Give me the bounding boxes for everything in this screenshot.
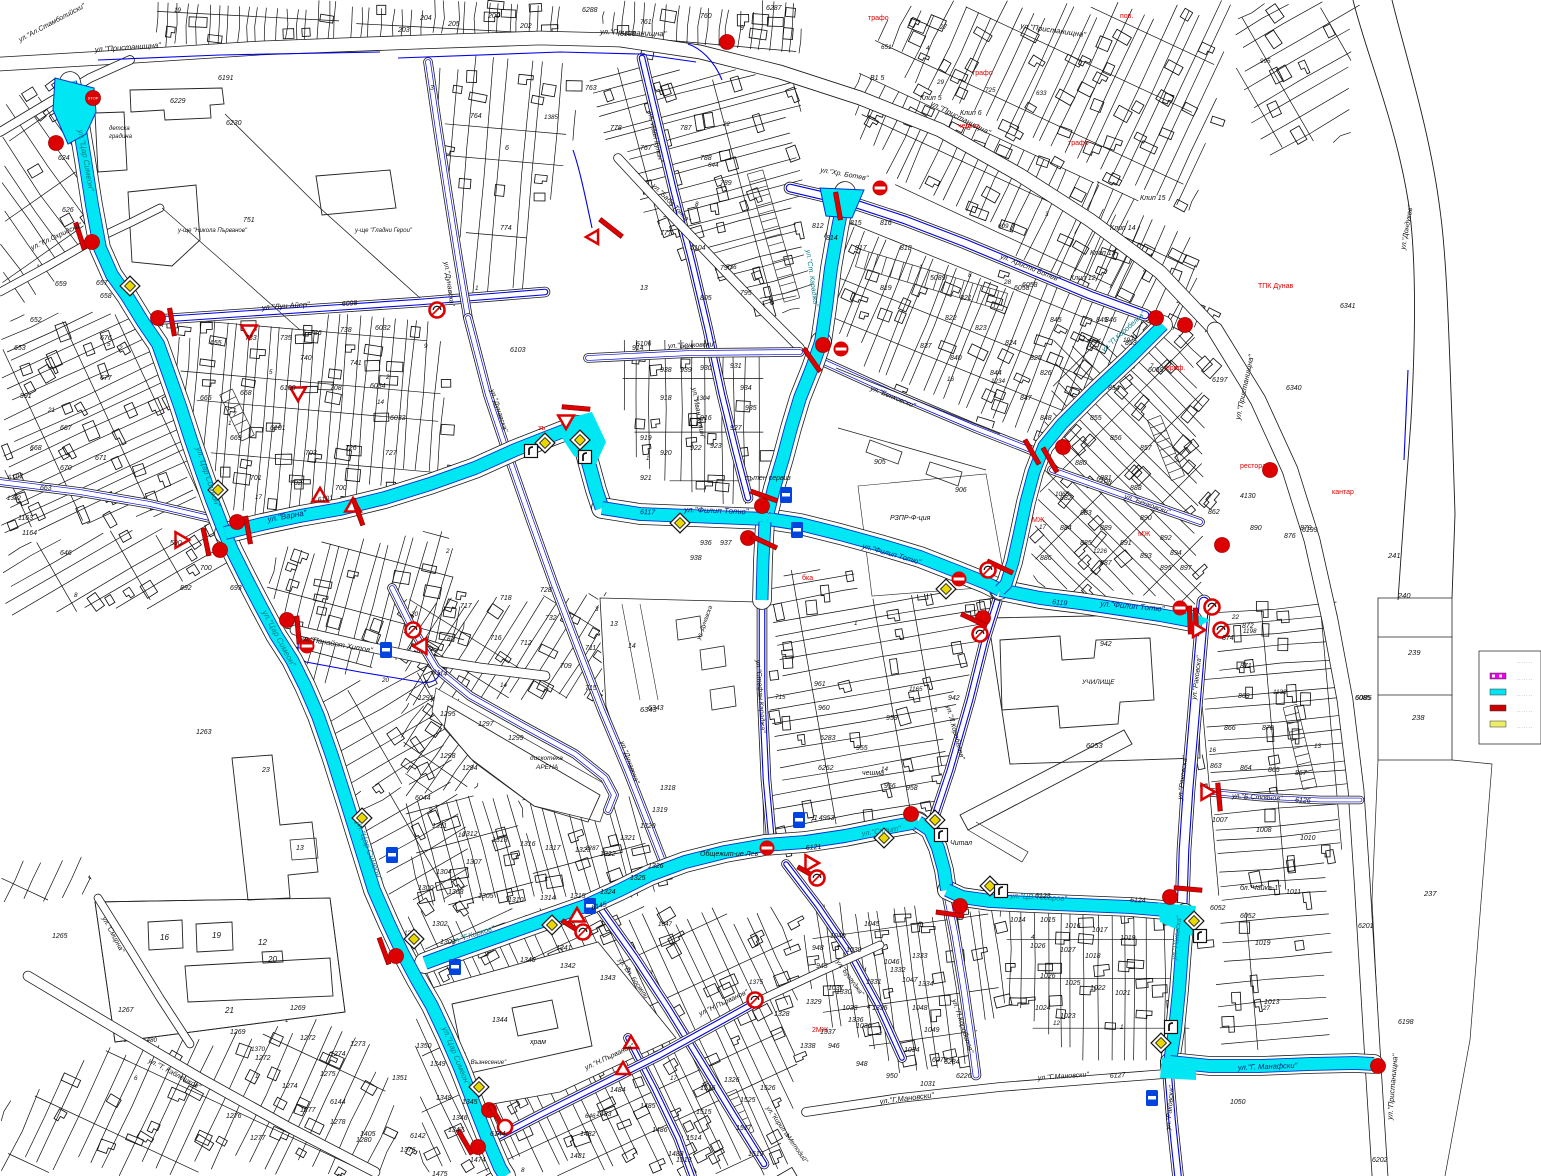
svg-text:1385: 1385 — [544, 114, 559, 121]
svg-text:трафо: трафо — [868, 15, 889, 22]
svg-text:4: 4 — [867, 1004, 871, 1011]
svg-text:.......: ....... — [1516, 694, 1533, 698]
svg-text:921: 921 — [640, 475, 652, 482]
svg-text:854: 854 — [1108, 385, 1120, 392]
svg-text:891: 891 — [1120, 540, 1132, 547]
svg-text:20: 20 — [267, 955, 277, 964]
svg-text:824: 824 — [1005, 340, 1017, 347]
svg-text:715: 715 — [585, 685, 597, 692]
svg-text:5089: 5089 — [930, 275, 946, 282]
svg-text:1163: 1163 — [18, 515, 33, 522]
svg-text:658: 658 — [100, 293, 112, 300]
svg-text:28: 28 — [1003, 279, 1012, 286]
svg-text:1475: 1475 — [432, 1171, 448, 1176]
svg-text:777: 777 — [660, 230, 673, 237]
svg-text:6059: 6059 — [1148, 367, 1164, 374]
svg-text:670: 670 — [60, 465, 72, 472]
svg-text:8: 8 — [918, 921, 922, 928]
svg-text:6142: 6142 — [410, 1133, 426, 1140]
svg-text:8: 8 — [74, 592, 78, 599]
svg-text:814: 814 — [826, 235, 838, 242]
svg-text:609: 609 — [998, 223, 1009, 230]
svg-text:676: 676 — [100, 335, 112, 342]
svg-text:938: 938 — [660, 367, 672, 374]
svg-text:787: 787 — [680, 125, 693, 132]
svg-text:991: 991 — [20, 393, 32, 400]
svg-text:883: 883 — [1080, 510, 1092, 517]
svg-text:703: 703 — [305, 450, 317, 457]
svg-text:пътен сервиз: пътен сервиз — [745, 475, 792, 482]
svg-text:816: 816 — [880, 220, 892, 227]
svg-text:1269: 1269 — [230, 1029, 246, 1036]
svg-text:733: 733 — [245, 335, 257, 342]
svg-text:21: 21 — [47, 407, 55, 414]
svg-text:1: 1 — [255, 1073, 259, 1080]
svg-text:1019: 1019 — [1120, 935, 1136, 942]
svg-text:937: 937 — [720, 540, 733, 547]
svg-text:6117: 6117 — [640, 509, 656, 517]
svg-text:890: 890 — [1250, 525, 1262, 532]
svg-text:1273: 1273 — [350, 1041, 366, 1048]
svg-text:923: 923 — [710, 443, 722, 450]
svg-text:9: 9 — [429, 807, 433, 814]
svg-text:1050: 1050 — [1230, 1099, 1246, 1106]
svg-text:740: 740 — [300, 355, 312, 362]
svg-text:897: 897 — [1180, 565, 1193, 572]
svg-text:844: 844 — [990, 370, 1002, 377]
svg-text:пов.: пов. — [1120, 13, 1133, 20]
svg-text:204: 204 — [419, 15, 432, 22]
svg-text:700: 700 — [200, 565, 212, 572]
svg-text:Клип 15: Клип 15 — [1140, 195, 1166, 202]
svg-text:866: 866 — [1224, 725, 1236, 732]
svg-text:6284: 6284 — [944, 1059, 960, 1066]
svg-text:1326: 1326 — [648, 863, 664, 870]
svg-text:12: 12 — [258, 938, 267, 947]
svg-text:1048: 1048 — [912, 1005, 928, 1012]
svg-text:1010: 1010 — [1300, 835, 1316, 842]
svg-text:1519: 1519 — [748, 1151, 764, 1158]
svg-text:948: 948 — [812, 945, 824, 952]
svg-text:Клип 13: Клип 13 — [1090, 250, 1116, 257]
svg-text:840: 840 — [950, 355, 962, 362]
svg-text:761: 761 — [640, 19, 652, 26]
svg-text:1481: 1481 — [570, 1153, 586, 1160]
svg-text:938: 938 — [690, 555, 702, 562]
svg-text:955: 955 — [856, 745, 868, 752]
svg-text:1351: 1351 — [392, 1075, 408, 1082]
svg-text:1047: 1047 — [902, 977, 919, 984]
svg-text:6052: 6052 — [1210, 905, 1226, 912]
svg-text:1046: 1046 — [884, 959, 900, 966]
svg-text:14: 14 — [500, 682, 508, 689]
svg-text:735: 735 — [280, 335, 292, 342]
svg-text:1274: 1274 — [330, 1051, 346, 1058]
svg-text:241: 241 — [1387, 551, 1401, 560]
svg-text:1226: 1226 — [1093, 548, 1108, 555]
svg-text:715: 715 — [775, 694, 786, 701]
svg-text:1: 1 — [1120, 1024, 1124, 1031]
svg-text:1276: 1276 — [226, 1113, 242, 1120]
svg-text:трафо: трафо — [972, 70, 993, 77]
svg-text:.......: ....... — [1516, 726, 1533, 730]
svg-text:1514: 1514 — [686, 1135, 702, 1142]
svg-text:6034: 6034 — [370, 383, 386, 390]
svg-text:633: 633 — [1036, 90, 1047, 97]
svg-text:916: 916 — [700, 415, 712, 422]
svg-text:818: 818 — [900, 245, 912, 252]
svg-text:1315: 1315 — [570, 893, 586, 900]
svg-text:1295: 1295 — [440, 711, 456, 718]
svg-text:1316: 1316 — [520, 841, 536, 848]
svg-text:1138: 1138 — [1273, 689, 1287, 696]
svg-text:930: 930 — [700, 365, 712, 372]
svg-text:6058: 6058 — [1022, 282, 1038, 289]
svg-text:693: 693 — [230, 585, 242, 592]
svg-text:6343: 6343 — [648, 705, 664, 712]
svg-text:6103: 6103 — [510, 347, 526, 354]
svg-text:6197: 6197 — [1212, 377, 1229, 384]
svg-text:14: 14 — [628, 643, 636, 650]
svg-text:1016: 1016 — [1065, 923, 1081, 930]
svg-text:1022: 1022 — [1090, 985, 1106, 992]
svg-text:1314: 1314 — [540, 895, 556, 902]
svg-text:920: 920 — [660, 450, 672, 457]
svg-text:1278: 1278 — [330, 1119, 346, 1126]
svg-text:894: 894 — [1170, 550, 1182, 557]
svg-text:1013: 1013 — [1264, 999, 1280, 1006]
svg-text:детска: детска — [109, 126, 130, 132]
svg-text:1513: 1513 — [676, 1157, 692, 1164]
svg-text:1331: 1331 — [866, 979, 882, 986]
svg-text:1483: 1483 — [596, 1111, 612, 1118]
svg-text:1300: 1300 — [418, 885, 434, 892]
svg-text:882: 882 — [1060, 495, 1072, 502]
svg-text:995: 995 — [1260, 58, 1271, 65]
svg-text:.......: ....... — [1516, 710, 1533, 714]
svg-text:778: 778 — [610, 125, 622, 132]
svg-text:646: 646 — [60, 550, 72, 557]
svg-text:767: 767 — [640, 145, 653, 152]
svg-text:1024: 1024 — [1035, 1005, 1051, 1012]
svg-text:821: 821 — [960, 295, 972, 302]
svg-text:.......: ....... — [1516, 678, 1533, 682]
svg-text:3: 3 — [1045, 211, 1049, 218]
svg-text:738: 738 — [340, 327, 352, 334]
svg-text:17: 17 — [1039, 524, 1047, 531]
svg-text:1486: 1486 — [652, 1127, 668, 1134]
svg-text:6052: 6052 — [1240, 913, 1256, 920]
svg-text:1325: 1325 — [630, 875, 646, 882]
svg-text:237: 237 — [1423, 889, 1437, 898]
svg-text:13: 13 — [610, 621, 618, 628]
svg-text:12: 12 — [1053, 1020, 1061, 1027]
svg-text:6283: 6283 — [820, 735, 836, 742]
svg-text:1344: 1344 — [492, 1017, 508, 1024]
svg-text:6262: 6262 — [818, 765, 834, 772]
svg-text:864: 864 — [1240, 765, 1252, 772]
svg-text:1049: 1049 — [924, 1027, 940, 1034]
svg-text:6229: 6229 — [170, 98, 186, 105]
svg-text:черква: черква — [958, 123, 980, 130]
svg-text:1322: 1322 — [600, 851, 616, 858]
svg-text:Клип 14: Клип 14 — [1110, 225, 1136, 232]
svg-text:1: 1 — [646, 455, 650, 462]
svg-text:1350: 1350 — [416, 1043, 432, 1050]
svg-text:959: 959 — [886, 715, 898, 722]
svg-text:храм: храм — [529, 1039, 546, 1046]
svg-text:6202: 6202 — [1372, 1157, 1388, 1164]
svg-text:922: 922 — [690, 445, 702, 452]
svg-text:1376: 1376 — [400, 1147, 416, 1154]
svg-text:8: 8 — [968, 272, 972, 279]
svg-text:1346: 1346 — [452, 1115, 468, 1122]
svg-text:892: 892 — [1160, 535, 1172, 542]
svg-text:702: 702 — [290, 480, 302, 487]
svg-text:1017: 1017 — [1092, 927, 1109, 934]
svg-text:668: 668 — [30, 445, 42, 452]
svg-text:1303: 1303 — [440, 939, 456, 946]
svg-text:4130: 4130 — [1240, 493, 1256, 500]
svg-text:887: 887 — [1100, 560, 1113, 567]
svg-text:бка: бка — [802, 574, 813, 582]
svg-text:у-ще "Гладни Герои": у-ще "Гладни Герои" — [354, 228, 413, 234]
svg-text:у-ще "Никола Първанов": у-ще "Никола Първанов" — [177, 228, 248, 234]
svg-text:863: 863 — [1210, 763, 1222, 770]
svg-text:1336: 1336 — [848, 1017, 864, 1024]
svg-text:671: 671 — [95, 455, 107, 462]
svg-text:1337: 1337 — [820, 1029, 837, 1036]
svg-text:1525: 1525 — [740, 1097, 756, 1104]
svg-text:1297: 1297 — [478, 721, 495, 728]
svg-text:1308: 1308 — [448, 889, 464, 896]
svg-text:845: 845 — [1050, 317, 1062, 324]
svg-text:6124: 6124 — [1130, 897, 1146, 905]
svg-text:6198: 6198 — [1398, 1019, 1414, 1026]
svg-text:948: 948 — [856, 1061, 868, 1068]
svg-text:1025: 1025 — [1065, 980, 1081, 987]
svg-text:6044: 6044 — [415, 795, 431, 802]
svg-text:27: 27 — [939, 24, 948, 31]
svg-text:652: 652 — [30, 317, 42, 324]
svg-text:865: 865 — [1268, 767, 1280, 774]
svg-text:22: 22 — [722, 121, 731, 128]
svg-text:871: 871 — [1240, 663, 1252, 670]
svg-text:21: 21 — [224, 1006, 234, 1015]
svg-text:203: 203 — [397, 27, 410, 34]
svg-text:6287: 6287 — [766, 5, 783, 12]
svg-text:1317: 1317 — [545, 845, 562, 852]
svg-text:238: 238 — [1411, 713, 1425, 722]
svg-text:20: 20 — [381, 677, 390, 684]
svg-text:884: 884 — [1060, 525, 1072, 532]
svg-text:1272: 1272 — [300, 1035, 316, 1042]
svg-text:1: 1 — [228, 420, 232, 427]
svg-text:1298: 1298 — [440, 753, 456, 760]
svg-text:6288: 6288 — [582, 7, 598, 14]
svg-text:825: 825 — [1030, 355, 1042, 362]
svg-text:655: 655 — [210, 340, 222, 347]
svg-text:9: 9 — [424, 343, 428, 350]
svg-text:815: 815 — [850, 220, 862, 227]
svg-text:1272: 1272 — [255, 1055, 271, 1062]
svg-text:6101: 6101 — [270, 425, 286, 432]
svg-text:709: 709 — [560, 663, 572, 670]
svg-text:Клип 5: Клип 5 — [920, 95, 942, 102]
svg-text:1526: 1526 — [760, 1085, 776, 1092]
svg-text:1038: 1038 — [842, 1005, 858, 1012]
svg-text:1341: 1341 — [556, 945, 572, 952]
svg-text:855: 855 — [1090, 415, 1102, 422]
svg-text:956: 956 — [884, 783, 896, 790]
svg-text:918: 918 — [660, 395, 672, 402]
svg-text:1008: 1008 — [1256, 827, 1272, 834]
svg-text:1302: 1302 — [432, 921, 448, 928]
svg-text:819: 819 — [880, 285, 892, 292]
svg-text:1485: 1485 — [640, 1103, 656, 1110]
svg-text:1277: 1277 — [300, 1107, 317, 1114]
svg-text:Читал: Читал — [950, 840, 972, 847]
svg-text:1026: 1026 — [1040, 973, 1056, 980]
svg-text:958: 958 — [906, 785, 918, 792]
svg-text:13: 13 — [296, 845, 304, 852]
svg-text:847: 847 — [1020, 395, 1033, 402]
svg-text:АРЕНА: АРЕНА — [535, 764, 558, 771]
svg-text:764: 764 — [470, 113, 482, 120]
svg-text:1338: 1338 — [800, 1043, 816, 1050]
svg-text:716: 716 — [490, 635, 502, 642]
svg-text:1319: 1319 — [652, 807, 668, 814]
svg-text:812: 812 — [812, 223, 824, 230]
svg-text:919: 919 — [640, 435, 652, 442]
svg-text:1291: 1291 — [418, 695, 434, 702]
svg-text:1474: 1474 — [470, 1157, 486, 1164]
svg-text:906: 906 — [955, 487, 967, 494]
svg-text:1312: 1312 — [462, 831, 478, 838]
svg-text:8: 8 — [695, 201, 699, 208]
svg-text:853: 853 — [1125, 340, 1137, 347]
svg-text:1375: 1375 — [749, 979, 764, 986]
svg-text:1294: 1294 — [462, 765, 478, 772]
svg-text:1328: 1328 — [774, 1011, 790, 1018]
svg-text:202: 202 — [519, 23, 532, 30]
svg-text:870: 870 — [1262, 725, 1274, 732]
svg-text:ТПК Дунав: ТПК Дунав — [1258, 283, 1293, 290]
svg-text:6230: 6230 — [226, 120, 242, 127]
svg-text:1347: 1347 — [448, 1127, 465, 1134]
svg-text:.......: ....... — [1516, 661, 1533, 665]
svg-text:1318: 1318 — [660, 785, 676, 792]
svg-text:6144: 6144 — [490, 1131, 506, 1138]
svg-text:1274: 1274 — [282, 1083, 298, 1090]
svg-text:711: 711 — [585, 645, 596, 652]
svg-text:19: 19 — [174, 7, 182, 14]
svg-text:1333: 1333 — [912, 953, 928, 960]
svg-text:В1 5: В1 5 — [870, 75, 885, 82]
svg-text:950: 950 — [886, 1073, 898, 1080]
svg-text:624: 624 — [58, 155, 70, 162]
svg-text:646: 646 — [585, 1113, 596, 1120]
svg-text:665: 665 — [200, 395, 212, 402]
svg-text:943: 943 — [816, 963, 828, 970]
svg-text:1280: 1280 — [356, 1137, 372, 1144]
svg-text:1332: 1332 — [890, 967, 906, 974]
svg-text:1321: 1321 — [620, 835, 636, 842]
svg-text:Общежит-ие Лев: Общежит-ие Лев — [700, 850, 758, 858]
svg-text:17: 17 — [670, 1075, 678, 1082]
svg-text:874: 874 — [1222, 635, 1234, 642]
svg-text:946: 946 — [828, 1043, 840, 1050]
svg-text:6: 6 — [447, 636, 451, 643]
svg-text:727: 727 — [385, 450, 398, 457]
svg-text:1011: 1011 — [1286, 889, 1301, 896]
svg-text:29: 29 — [936, 79, 945, 86]
svg-text:6127: 6127 — [1110, 1072, 1127, 1080]
svg-text:927: 927 — [730, 425, 743, 432]
svg-text:857: 857 — [1140, 445, 1153, 452]
svg-text:1313: 1313 — [492, 837, 508, 844]
svg-text:16: 16 — [1209, 747, 1217, 754]
svg-text:ресторант: ресторант — [1240, 463, 1274, 470]
svg-text:934: 934 — [740, 385, 752, 392]
svg-text:1234: 1234 — [991, 378, 1006, 385]
svg-text:19: 19 — [212, 931, 221, 940]
svg-text:1027: 1027 — [1060, 947, 1077, 954]
svg-text:6: 6 — [505, 145, 509, 152]
svg-text:1515: 1515 — [696, 1109, 712, 1116]
svg-text:789: 789 — [720, 180, 732, 187]
svg-text:1324: 1324 — [600, 889, 616, 896]
svg-text:градина: градина — [109, 134, 133, 140]
svg-text:893: 893 — [1140, 553, 1152, 560]
svg-text:5: 5 — [107, 341, 111, 348]
svg-text:6033: 6033 — [390, 415, 406, 422]
svg-text:240: 240 — [1397, 591, 1411, 600]
svg-text:МЖ: МЖ — [1032, 517, 1045, 524]
svg-text:700: 700 — [335, 485, 347, 492]
svg-text:886: 886 — [1040, 555, 1052, 562]
svg-text:856: 856 — [1110, 435, 1122, 442]
svg-text:1031: 1031 — [920, 1081, 936, 1088]
svg-text:657: 657 — [96, 280, 109, 287]
svg-text:6053: 6053 — [1086, 741, 1104, 750]
svg-text:6193: 6193 — [620, 31, 636, 38]
svg-text:6032: 6032 — [375, 325, 391, 332]
svg-text:790: 790 — [720, 265, 732, 272]
svg-text:667: 667 — [60, 425, 73, 432]
svg-text:1164: 1164 — [22, 530, 37, 537]
svg-text:22: 22 — [1231, 614, 1240, 621]
svg-text:Д 4953: Д 4953 — [811, 815, 835, 822]
svg-text:1382: 1382 — [7, 495, 22, 502]
svg-text:1019: 1019 — [1255, 940, 1271, 947]
svg-text:728: 728 — [540, 587, 552, 594]
svg-text:200: 200 — [487, 13, 500, 20]
svg-text:дискотека: дискотека — [530, 754, 563, 762]
svg-text:6201: 6201 — [1358, 923, 1374, 930]
svg-text:895: 895 — [1160, 565, 1172, 572]
svg-text:205: 205 — [447, 21, 460, 28]
svg-text:МЖ: МЖ — [1138, 531, 1151, 538]
svg-text:701: 701 — [250, 475, 262, 482]
svg-text:846: 846 — [1105, 317, 1117, 324]
svg-text:1277: 1277 — [250, 1135, 267, 1142]
svg-text:862: 862 — [1208, 509, 1220, 516]
svg-text:1: 1 — [854, 620, 858, 627]
svg-text:2: 2 — [445, 548, 450, 555]
svg-text:STOP: STOP — [88, 96, 99, 101]
svg-text:1: 1 — [475, 285, 479, 292]
